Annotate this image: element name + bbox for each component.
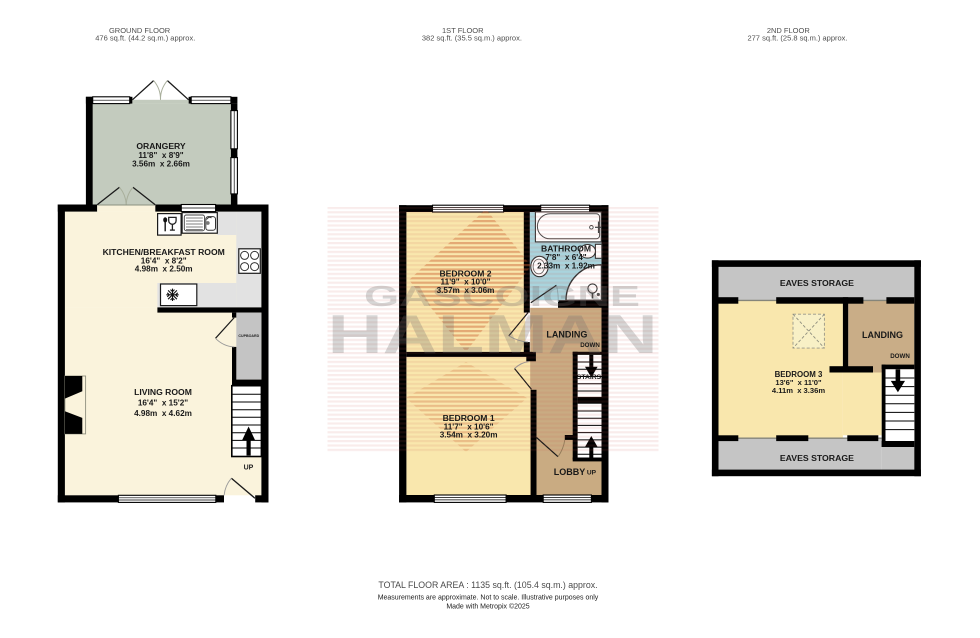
svg-text:382 sq.ft. (35.5 sq.m.) approx: 382 sq.ft. (35.5 sq.m.) approx. xyxy=(422,34,522,43)
svg-text:2.33m x 1.92m: 2.33m x 1.92m xyxy=(537,261,595,270)
svg-text:EAVES STORAGE: EAVES STORAGE xyxy=(780,278,854,288)
svg-text:3.56m x 2.66m: 3.56m x 2.66m xyxy=(132,160,190,169)
svg-text:4.98m x 4.62m: 4.98m x 4.62m xyxy=(134,409,192,418)
svg-text:UP: UP xyxy=(244,465,254,472)
svg-text:UP: UP xyxy=(587,469,597,476)
svg-text:Measurements are approximate.: Measurements are approximate. Not to sca… xyxy=(378,595,599,602)
svg-text:TOTAL FLOOR AREA : 1135 sq.ft.: TOTAL FLOOR AREA : 1135 sq.ft. (105.4 sq… xyxy=(378,580,597,590)
svg-text:476 sq.ft. (44.2 sq.m.) approx: 476 sq.ft. (44.2 sq.m.) approx. xyxy=(95,34,195,43)
svg-text:4.11m x 3.36m: 4.11m x 3.36m xyxy=(772,386,825,395)
svg-text:LANDING: LANDING xyxy=(546,330,587,340)
svg-text:LOBBY: LOBBY xyxy=(554,467,586,477)
svg-text:3.57m x 3.06m: 3.57m x 3.06m xyxy=(437,286,495,295)
svg-text:LIVING ROOM: LIVING ROOM xyxy=(134,387,192,397)
svg-text:DOWN: DOWN xyxy=(580,342,600,349)
svg-text:277 sq.ft. (25.8 sq.m.) approx: 277 sq.ft. (25.8 sq.m.) approx. xyxy=(747,34,847,43)
svg-text:Made with Metropix ©2025: Made with Metropix ©2025 xyxy=(446,603,529,611)
svg-text:DOWN: DOWN xyxy=(890,353,910,360)
svg-text:EAVES STORAGE: EAVES STORAGE xyxy=(780,453,854,463)
svg-text:HALMAN: HALMAN xyxy=(328,303,658,365)
svg-text:LANDING: LANDING xyxy=(862,330,903,340)
svg-text:16'4" x 15'2": 16'4" x 15'2" xyxy=(138,399,188,408)
svg-text:3.54m x 3.20m: 3.54m x 3.20m xyxy=(440,431,498,440)
svg-text:CUPBOARD: CUPBOARD xyxy=(238,334,259,338)
svg-text:4.98m x 2.50m: 4.98m x 2.50m xyxy=(135,265,193,274)
svg-text:ORANGERY: ORANGERY xyxy=(136,141,186,151)
svg-text:STAIRS: STAIRS xyxy=(577,374,602,381)
